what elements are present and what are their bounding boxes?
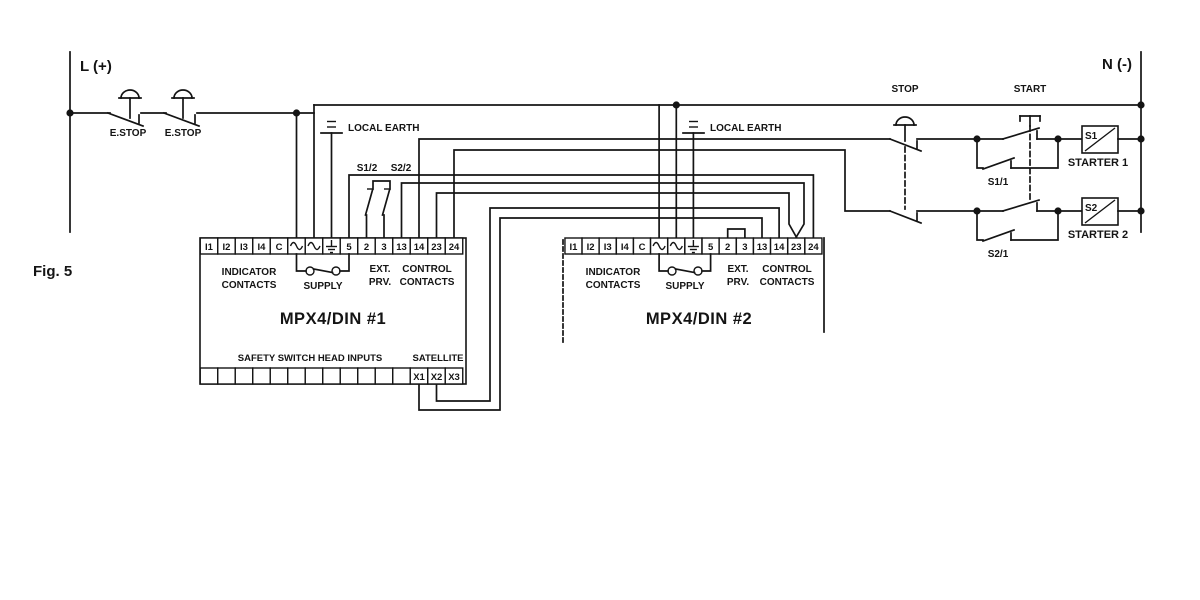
terminal-label: 23 (791, 242, 802, 253)
starter-box-label: S2 (1085, 203, 1098, 214)
junction-dot (1137, 101, 1144, 108)
junction-dot (1137, 135, 1144, 142)
section-label: EXT. (727, 264, 748, 275)
section-label: CONTACTS (400, 277, 455, 288)
terminal-label: I4 (621, 242, 630, 253)
stop-label: STOP (891, 84, 918, 95)
terminal-label: 3 (742, 242, 747, 253)
terminal-label: 24 (449, 242, 460, 253)
section-label: PRV. (369, 277, 391, 288)
starter-1: S1 STARTER 1 (1058, 126, 1141, 169)
mpx4-din-wiring-diagram: L (+) Fig. 5 E.STOP E.STOP (0, 0, 1200, 600)
section-label: INDICATOR (222, 267, 277, 278)
push-button-actuator-icon (1020, 116, 1040, 126)
neutral-polarity-label: N (-) (1102, 56, 1132, 73)
unit-title: MPX4/DIN #2 (646, 310, 752, 328)
terminal-label: C (639, 242, 646, 253)
aux-contact-label: S1/2 (357, 163, 378, 174)
section-label: CONTROL (762, 264, 811, 275)
satellite-terminal-label: X2 (431, 372, 443, 383)
terminal-label: 24 (808, 242, 819, 253)
terminal-label: I2 (223, 242, 231, 253)
terminal-label: 13 (396, 242, 407, 253)
section-label: SUPPLY (665, 281, 704, 292)
terminal-label: 2 (364, 242, 369, 253)
terminal-label: I1 (205, 242, 214, 253)
mpx4-din-unit-2: I1 I2 I3 I4 C 5 2 3 13 14 23 24 INDICATO… (563, 238, 824, 345)
seal-contact-label: S2/1 (988, 249, 1009, 260)
mushroom-button-icon (172, 90, 194, 118)
figure-label: Fig. 5 (33, 263, 72, 280)
section-label: PRV. (727, 277, 749, 288)
starter-2: S2 STARTER 2 (1058, 198, 1141, 241)
start-button: START (977, 84, 1058, 211)
local-earth-1: LOCAL EARTH (321, 122, 419, 239)
supply-switch-icon (659, 254, 711, 275)
earth-symbol-icon (321, 122, 342, 134)
estop-label: E.STOP (110, 128, 147, 139)
terminal-label: I2 (587, 242, 595, 253)
wiring-diagram-page: L (+) Fig. 5 E.STOP E.STOP (0, 0, 1200, 600)
mushroom-button-icon (894, 117, 916, 141)
local-earth-label: LOCAL EARTH (710, 123, 781, 134)
terminal-label: I1 (570, 242, 579, 253)
terminal-label: 13 (757, 242, 768, 253)
estop-button-1: E.STOP (108, 90, 147, 139)
terminal-label: 2 (725, 242, 730, 253)
terminal-label: 3 (381, 242, 386, 253)
earth-symbol-icon (683, 122, 704, 134)
terminal-label: 5 (346, 242, 352, 253)
mpx4-din-unit-1: I1 I2 I3 I4 C 5 2 3 13 14 23 24 INDICATO… (200, 238, 466, 384)
inputs-label: SAFETY SWITCH HEAD INPUTS (238, 353, 382, 364)
seal-contact-label: S1/1 (988, 177, 1009, 188)
section-label: CONTACTS (586, 280, 641, 291)
seal-contact-s2-1: S2/1 (973, 207, 1061, 260)
section-label: CONTACTS (222, 280, 277, 291)
local-earth-label: LOCAL EARTH (348, 123, 419, 134)
satellite-label: SATELLITE (412, 353, 463, 364)
terminal-label: C (276, 242, 283, 253)
terminal-label: 14 (414, 242, 425, 253)
terminal-row-top: I1 I2 I3 I4 C 5 2 3 13 14 23 24 (200, 238, 463, 254)
terminal-row-top: I1 I2 I3 I4 C 5 2 3 13 14 23 24 (565, 238, 822, 254)
terminal-label: I4 (258, 242, 267, 253)
terminal-label: I3 (604, 242, 612, 253)
terminal-label: 5 (708, 242, 714, 253)
section-label: CONTROL (402, 264, 451, 275)
starter-name-label: STARTER 2 (1068, 229, 1128, 241)
terminal-label: 14 (774, 242, 785, 253)
supply-rail-left: L (+) (66, 52, 314, 232)
terminal-label: I3 (240, 242, 248, 253)
estop-label: E.STOP (165, 128, 202, 139)
section-label: INDICATOR (586, 267, 641, 278)
starter-name-label: STARTER 1 (1068, 157, 1128, 169)
section-label: EXT. (369, 264, 390, 275)
terminal-row-bottom: X1 X2 X3 (200, 368, 463, 384)
seal-contact-s1-1: S1/1 (973, 135, 1061, 188)
satellite-terminal-label: X3 (448, 372, 460, 383)
section-label: CONTACTS (760, 277, 815, 288)
line-polarity-label: L (+) (80, 58, 112, 75)
mushroom-button-icon (119, 90, 141, 118)
aux-contact-label: S2/2 (391, 163, 412, 174)
terminal-label: 23 (431, 242, 442, 253)
unit-title: MPX4/DIN #1 (280, 310, 386, 328)
junction-dot (1137, 207, 1144, 214)
estop-button-2: E.STOP (164, 90, 202, 139)
start-label: START (1014, 84, 1047, 95)
section-label: SUPPLY (303, 281, 342, 292)
starter-box-label: S1 (1085, 131, 1098, 142)
satellite-terminal-label: X1 (413, 372, 425, 383)
